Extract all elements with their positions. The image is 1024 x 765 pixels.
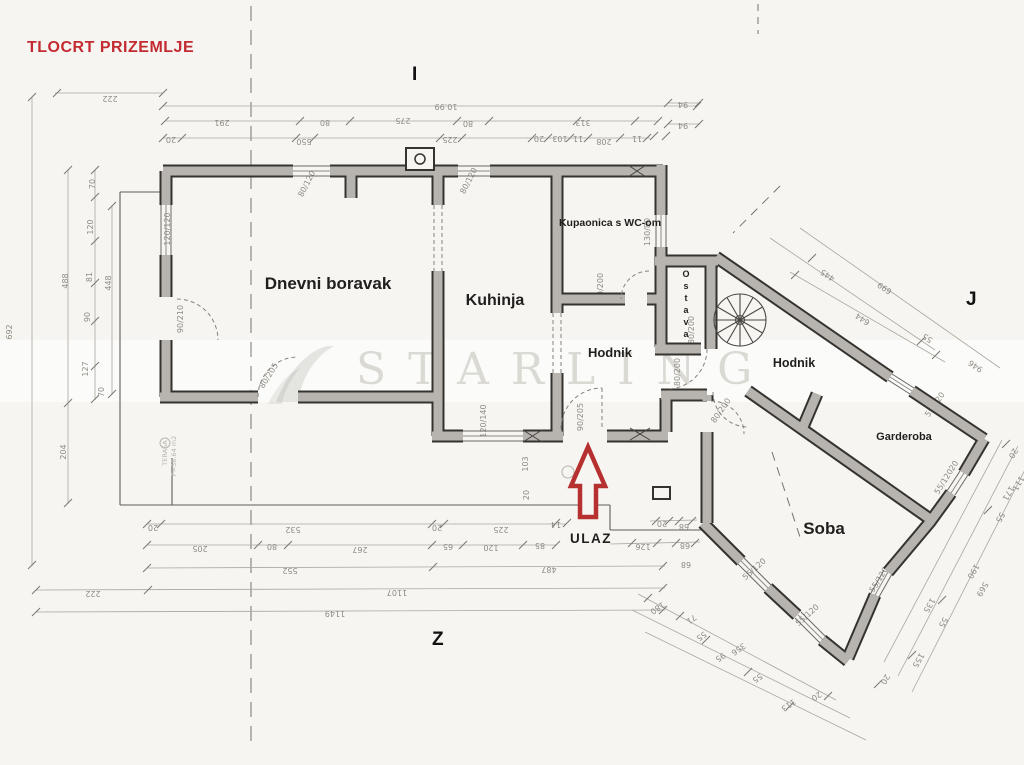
svg-text:20: 20 <box>432 523 442 532</box>
svg-text:1107: 1107 <box>387 588 407 597</box>
svg-text:692: 692 <box>5 324 14 339</box>
svg-text:10.99: 10.99 <box>435 102 458 111</box>
svg-text:1149: 1149 <box>325 609 345 618</box>
svg-text:208: 208 <box>596 137 611 146</box>
svg-text:120/140: 120/140 <box>479 404 488 437</box>
svg-text:11: 11 <box>573 134 583 143</box>
svg-text:P=38,64 m2: P=38,64 m2 <box>170 436 178 477</box>
axis-label-z: Z <box>432 629 444 650</box>
svg-text:532: 532 <box>285 525 300 534</box>
room-label-bedroom: Soba <box>803 519 845 538</box>
svg-text:80/120: 80/120 <box>296 169 317 198</box>
svg-text:80/200: 80/200 <box>673 358 682 386</box>
svg-text:552: 552 <box>282 566 297 575</box>
svg-text:20: 20 <box>166 135 176 144</box>
svg-text:313: 313 <box>575 118 590 127</box>
svg-text:225: 225 <box>442 135 457 144</box>
svg-text:55: 55 <box>994 511 1007 524</box>
floor-plan-page: STARLING 22210.9929180275803139494205502… <box>0 0 1024 765</box>
svg-text:68: 68 <box>680 541 690 550</box>
svg-text:90/205: 90/205 <box>576 403 585 431</box>
svg-text:80: 80 <box>463 119 473 128</box>
room-label-wardrobe: Garderoba <box>876 431 933 443</box>
room-label-kitchen: Kuhinja <box>466 292 525 309</box>
svg-text:70: 70 <box>97 387 106 397</box>
svg-text:135: 135 <box>921 596 936 614</box>
svg-text:488: 488 <box>61 273 70 288</box>
svg-text:80: 80 <box>267 542 277 551</box>
doormat-symbol <box>653 487 670 499</box>
axis-label-j: J <box>966 289 977 310</box>
svg-text:65: 65 <box>443 542 453 551</box>
svg-text:20: 20 <box>522 490 531 500</box>
svg-text:70: 70 <box>88 179 97 189</box>
svg-text:94: 94 <box>678 121 688 130</box>
svg-text:55: 55 <box>695 629 709 642</box>
svg-text:171: 171 <box>1000 484 1015 502</box>
svg-text:445: 445 <box>819 267 837 283</box>
svg-text:20: 20 <box>879 673 892 686</box>
svg-text:20: 20 <box>148 523 158 532</box>
svg-text:95: 95 <box>714 650 728 663</box>
room-label-living: Dnevni boravak <box>265 274 392 293</box>
svg-text:11: 11 <box>632 134 642 143</box>
svg-text:103: 103 <box>521 456 530 471</box>
svg-text:TERASA: TERASA <box>161 440 169 467</box>
watermark-text: STARLING <box>356 344 774 395</box>
svg-text:225: 225 <box>493 525 508 534</box>
svg-text:126: 126 <box>635 542 650 551</box>
svg-text:127: 127 <box>81 361 90 376</box>
room-label-pantry: Ostava <box>682 269 689 339</box>
room-label-bath: Kupaonica s WC-om <box>559 217 661 229</box>
svg-text:180: 180 <box>649 600 667 616</box>
svg-text:190: 190 <box>965 562 980 580</box>
svg-text:222: 222 <box>85 589 100 598</box>
walls-layer <box>160 165 984 661</box>
svg-text:20: 20 <box>657 519 667 528</box>
svg-text:550: 550 <box>296 137 311 146</box>
svg-text:20: 20 <box>1007 447 1020 460</box>
svg-text:90/210: 90/210 <box>176 305 185 333</box>
electrical-symbol <box>562 466 574 478</box>
svg-text:20: 20 <box>810 689 824 702</box>
svg-text:68: 68 <box>681 560 691 569</box>
svg-text:448: 448 <box>104 275 113 290</box>
floor-plan-svg: STARLING 22210.9929180275803139494205502… <box>0 0 1024 765</box>
svg-text:103: 103 <box>552 134 567 143</box>
room-label-hall1: Hodnik <box>588 345 633 360</box>
svg-text:14: 14 <box>551 520 561 529</box>
svg-text:267: 267 <box>352 545 367 554</box>
watermark: STARLING <box>0 340 1024 404</box>
svg-text:80: 80 <box>320 118 330 127</box>
entrance-arrow-icon <box>571 447 605 517</box>
svg-text:204: 204 <box>59 444 68 459</box>
windows-layer <box>161 166 968 643</box>
svg-text:71: 71 <box>685 612 699 625</box>
svg-text:644: 644 <box>854 311 872 327</box>
svg-text:20: 20 <box>534 134 544 143</box>
svg-text:569: 569 <box>974 580 989 598</box>
svg-text:68: 68 <box>679 522 689 531</box>
svg-text:487: 487 <box>541 565 556 574</box>
entrance-label: ULAZ <box>570 531 612 546</box>
svg-text:55: 55 <box>937 616 950 629</box>
axis-label-i: I <box>412 64 417 85</box>
spiral-staircase-icon <box>714 294 766 346</box>
chimney-icon <box>406 148 434 170</box>
svg-text:55: 55 <box>751 671 765 684</box>
svg-text:222: 222 <box>102 94 117 103</box>
dimension-chain-lines <box>32 93 1024 740</box>
svg-text:120: 120 <box>86 219 95 234</box>
svg-text:81: 81 <box>85 272 94 282</box>
room-label-hall2: Hodnik <box>773 356 815 370</box>
svg-text:356: 356 <box>730 641 748 657</box>
plan-title: TLOCRT PRIZEMLJE <box>27 39 194 56</box>
svg-text:90: 90 <box>83 312 92 322</box>
svg-text:120: 120 <box>483 543 498 552</box>
svg-text:205: 205 <box>192 544 207 553</box>
svg-text:291: 291 <box>214 118 229 127</box>
svg-text:85: 85 <box>535 541 545 550</box>
svg-text:94: 94 <box>678 100 688 109</box>
svg-text:275: 275 <box>395 116 410 125</box>
